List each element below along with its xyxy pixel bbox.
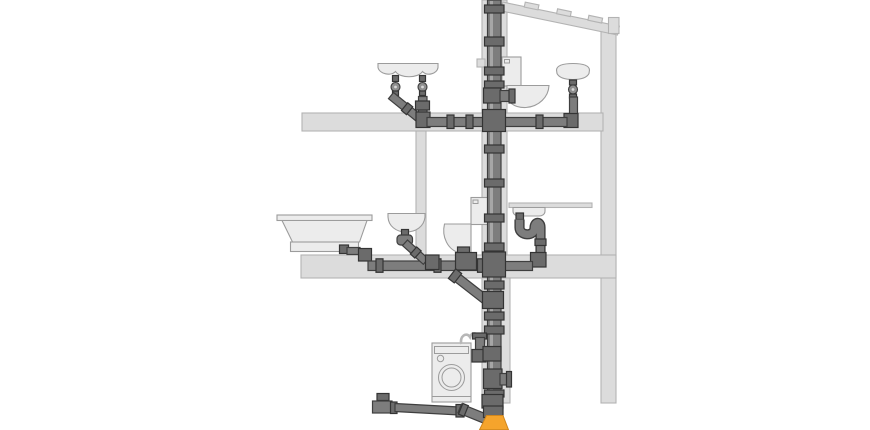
pipe-collar: [536, 115, 543, 129]
pipe-collar: [485, 281, 505, 289]
pipe-collar: [466, 115, 473, 129]
collector-junction-fitting: [456, 253, 477, 271]
cleanout-access: [484, 369, 512, 389]
stack-tee-fitting: [484, 88, 501, 103]
pipe-elbow: [359, 249, 372, 262]
pedestal-basin: [557, 64, 590, 99]
interior-wall: [416, 131, 426, 255]
trap-body: [373, 401, 393, 413]
kitchen-counter: [509, 203, 592, 208]
outer-wall: [601, 26, 616, 403]
pipe-collar: [485, 37, 505, 46]
valve-dot: [394, 86, 397, 89]
pipe-collar: [485, 5, 505, 13]
pipe-collar: [485, 145, 505, 153]
pipe-collar: [485, 214, 505, 222]
pipe-collar: [447, 115, 454, 129]
double-washbasin: [378, 64, 438, 96]
pipe-collar: [485, 243, 505, 251]
bathtub-rim: [277, 215, 372, 221]
toilet-branch-upper: [484, 88, 516, 103]
valve-dot: [572, 88, 575, 91]
horizontal-branch-pipe: [427, 118, 487, 127]
drain-tailpiece: [570, 80, 577, 85]
double-washbasin-bowl: [378, 64, 438, 77]
pipe-collar: [485, 67, 505, 75]
drain-stub: [420, 91, 426, 96]
drain-tailpiece: [420, 76, 426, 82]
pipe-collar: [376, 259, 383, 273]
flush-plate: [477, 59, 485, 67]
pipe-collar: [535, 239, 546, 246]
stack-cross-fitting: [483, 110, 506, 132]
drain-tailpiece: [516, 213, 524, 220]
eave-cap: [609, 18, 620, 34]
stack-cross-fitting: [483, 252, 506, 277]
pipe-collar: [509, 89, 515, 103]
valve-dot: [421, 86, 424, 89]
horizontal-branch-pipe: [503, 262, 533, 271]
washing-machine-body: [432, 343, 471, 402]
pipe-collar: [485, 81, 505, 88]
drainage-diagram-canvas: [0, 0, 870, 430]
pipe-collar: [485, 179, 505, 187]
stack-tee-fitting: [484, 369, 503, 389]
vent-cap-fitting: [377, 394, 389, 401]
pedestal-basin-bowl: [557, 64, 590, 80]
cleanout-cap: [507, 372, 512, 388]
drainage-diagram: [0, 0, 870, 430]
stack-tee-fitting: [483, 347, 501, 362]
bathtub: [277, 215, 372, 252]
pipe-collar: [485, 312, 505, 320]
kitchen-sink-trap: [503, 213, 546, 271]
roof-beam: [501, 0, 620, 35]
sloped-branch-pipe: [395, 404, 459, 416]
drain-tailpiece: [393, 76, 399, 82]
tee-fitting: [426, 255, 440, 270]
bathtub-body: [282, 221, 367, 243]
stack-wye-fitting: [483, 292, 504, 309]
wye-fitting: [416, 101, 430, 110]
pipe-collar: [485, 326, 505, 334]
